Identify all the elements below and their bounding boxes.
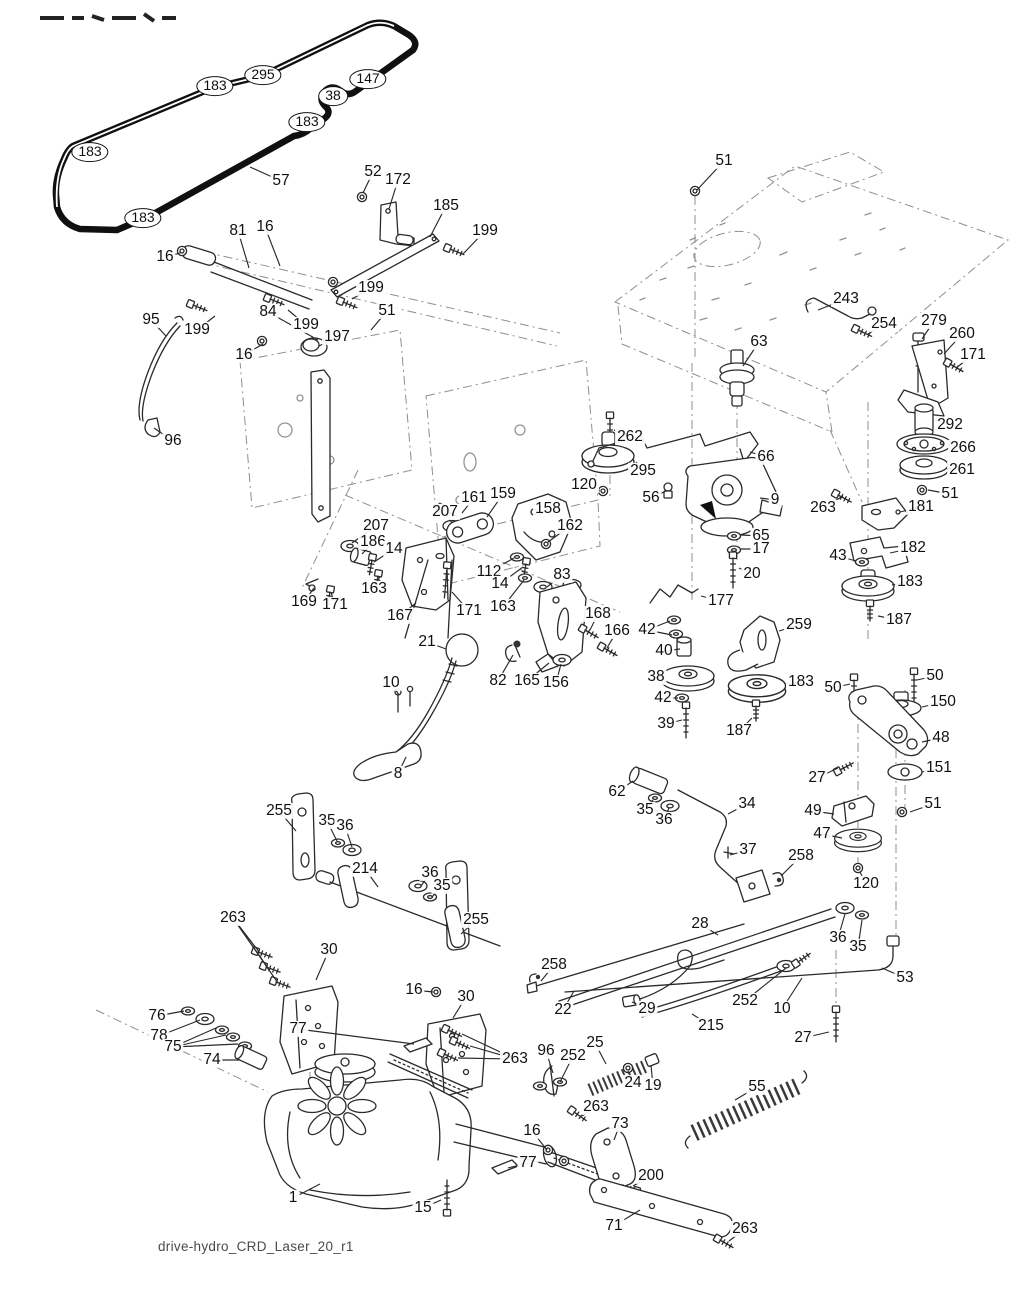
callout-185: 185 — [431, 198, 461, 214]
callout-258: 258 — [539, 957, 569, 973]
callout-183: 183 — [895, 574, 925, 590]
callout-263: 263 — [730, 1221, 760, 1237]
callout-43: 43 — [827, 548, 848, 564]
callout-215: 215 — [696, 1018, 726, 1034]
callout-40: 40 — [653, 643, 674, 659]
callout-66: 66 — [755, 449, 776, 465]
callout-279: 279 — [919, 313, 949, 329]
callout-199: 199 — [470, 223, 500, 239]
callout-254: 254 — [869, 316, 899, 332]
callout-57: 57 — [270, 173, 291, 189]
callout-27: 27 — [806, 770, 827, 786]
callout-150: 150 — [928, 694, 958, 710]
callout-187: 187 — [884, 612, 914, 628]
callout-16: 16 — [254, 219, 275, 235]
callout-30: 30 — [318, 942, 339, 958]
callout-77: 77 — [287, 1021, 308, 1037]
callout-261: 261 — [947, 462, 977, 478]
callout-259: 259 — [784, 617, 814, 633]
callout-200: 200 — [636, 1168, 666, 1184]
callout-77: 77 — [517, 1155, 538, 1171]
callout-168: 168 — [583, 606, 613, 622]
callout-29: 29 — [636, 1001, 657, 1017]
callout-8: 8 — [392, 766, 405, 782]
callout-187: 187 — [724, 723, 754, 739]
callout-50: 50 — [924, 668, 945, 684]
callout-21: 21 — [416, 634, 437, 650]
callout-75: 75 — [162, 1039, 183, 1055]
callout-19: 19 — [642, 1078, 663, 1094]
callout-199: 199 — [356, 280, 386, 296]
callout-243: 243 — [831, 291, 861, 307]
callout-292: 292 — [935, 417, 965, 433]
callout-159: 159 — [488, 486, 518, 502]
callout-28: 28 — [689, 916, 710, 932]
callout-layer: 1832951473818318318357521721851998116161… — [0, 0, 1024, 1289]
callout-96: 96 — [162, 433, 183, 449]
callout-252: 252 — [730, 993, 760, 1009]
callout-166: 166 — [602, 623, 632, 639]
callout-42: 42 — [636, 622, 657, 638]
callout-183: 183 — [71, 142, 108, 162]
callout-10: 10 — [771, 1001, 792, 1017]
parts-diagram-page: 1832951473818318318357521721851998116161… — [0, 0, 1024, 1289]
callout-258: 258 — [786, 848, 816, 864]
callout-49: 49 — [802, 803, 823, 819]
callout-24: 24 — [622, 1075, 643, 1091]
callout-295: 295 — [244, 65, 281, 85]
callout-182: 182 — [898, 540, 928, 556]
callout-16: 16 — [233, 347, 254, 363]
callout-48: 48 — [930, 730, 951, 746]
callout-183: 183 — [196, 76, 233, 96]
callout-263: 263 — [218, 910, 248, 926]
footer-filename: drive-hydro_CRD_Laser_20_r1 — [158, 1239, 354, 1254]
callout-51: 51 — [376, 303, 397, 319]
callout-199: 199 — [291, 317, 321, 333]
callout-35: 35 — [431, 878, 452, 894]
callout-51: 51 — [713, 153, 734, 169]
callout-183: 183 — [124, 208, 161, 228]
callout-53: 53 — [894, 970, 915, 986]
callout-73: 73 — [609, 1116, 630, 1132]
callout-51: 51 — [939, 486, 960, 502]
callout-161: 161 — [459, 490, 489, 506]
callout-82: 82 — [487, 673, 508, 689]
callout-266: 266 — [948, 440, 978, 456]
callout-214: 214 — [350, 861, 380, 877]
callout-35: 35 — [847, 939, 868, 955]
callout-120: 120 — [851, 876, 881, 892]
callout-197: 197 — [322, 329, 352, 345]
callout-47: 47 — [811, 826, 832, 842]
callout-295: 295 — [628, 463, 658, 479]
callout-10: 10 — [380, 675, 401, 691]
callout-27: 27 — [792, 1030, 813, 1046]
callout-36: 36 — [827, 930, 848, 946]
callout-84: 84 — [257, 304, 278, 320]
callout-30: 30 — [455, 989, 476, 1005]
callout-162: 162 — [555, 518, 585, 534]
callout-171: 171 — [454, 603, 484, 619]
callout-255: 255 — [264, 803, 294, 819]
callout-36: 36 — [653, 812, 674, 828]
callout-76: 76 — [146, 1008, 167, 1024]
callout-156: 156 — [541, 675, 571, 691]
callout-16: 16 — [521, 1123, 542, 1139]
callout-20: 20 — [741, 566, 762, 582]
callout-151: 151 — [924, 760, 954, 776]
callout-16: 16 — [154, 249, 175, 265]
callout-71: 71 — [603, 1218, 624, 1234]
callout-14: 14 — [489, 576, 510, 592]
callout-120: 120 — [569, 477, 599, 493]
callout-263: 263 — [500, 1051, 530, 1067]
callout-51: 51 — [922, 796, 943, 812]
callout-55: 55 — [746, 1079, 767, 1095]
callout-163: 163 — [359, 581, 389, 597]
callout-50: 50 — [822, 680, 843, 696]
callout-38: 38 — [645, 669, 666, 685]
callout-199: 199 — [182, 322, 212, 338]
callout-25: 25 — [584, 1035, 605, 1051]
callout-22: 22 — [552, 1002, 573, 1018]
callout-158: 158 — [533, 501, 563, 517]
callout-36: 36 — [334, 818, 355, 834]
callout-95: 95 — [140, 312, 161, 328]
callout-74: 74 — [201, 1052, 222, 1068]
callout-17: 17 — [750, 541, 771, 557]
callout-34: 34 — [736, 796, 757, 812]
callout-39: 39 — [655, 716, 676, 732]
callout-52: 52 — [362, 164, 383, 180]
callout-167: 167 — [385, 608, 415, 624]
callout-181: 181 — [906, 499, 936, 515]
callout-263: 263 — [581, 1099, 611, 1115]
callout-183: 183 — [288, 112, 325, 132]
callout-16: 16 — [403, 982, 424, 998]
callout-14: 14 — [383, 541, 404, 557]
callout-15: 15 — [412, 1200, 433, 1216]
callout-172: 172 — [383, 172, 413, 188]
callout-163: 163 — [488, 599, 518, 615]
callout-81: 81 — [227, 223, 248, 239]
callout-262: 262 — [615, 429, 645, 445]
callout-183: 183 — [786, 674, 816, 690]
callout-255: 255 — [461, 912, 491, 928]
callout-9: 9 — [769, 492, 782, 508]
callout-207: 207 — [430, 504, 460, 520]
callout-260: 260 — [947, 326, 977, 342]
callout-263: 263 — [808, 500, 838, 516]
callout-42: 42 — [652, 690, 673, 706]
callout-1: 1 — [287, 1190, 300, 1206]
callout-207: 207 — [361, 518, 391, 534]
callout-177: 177 — [706, 593, 736, 609]
callout-147: 147 — [349, 69, 386, 89]
callout-37: 37 — [737, 842, 758, 858]
callout-171: 171 — [320, 597, 350, 613]
callout-62: 62 — [606, 784, 627, 800]
callout-83: 83 — [551, 567, 572, 583]
callout-169: 169 — [289, 594, 319, 610]
callout-96: 96 — [535, 1043, 556, 1059]
callout-63: 63 — [748, 334, 769, 350]
callout-165: 165 — [512, 673, 542, 689]
callout-38: 38 — [318, 86, 348, 106]
callout-171: 171 — [958, 347, 988, 363]
callout-56: 56 — [640, 490, 661, 506]
